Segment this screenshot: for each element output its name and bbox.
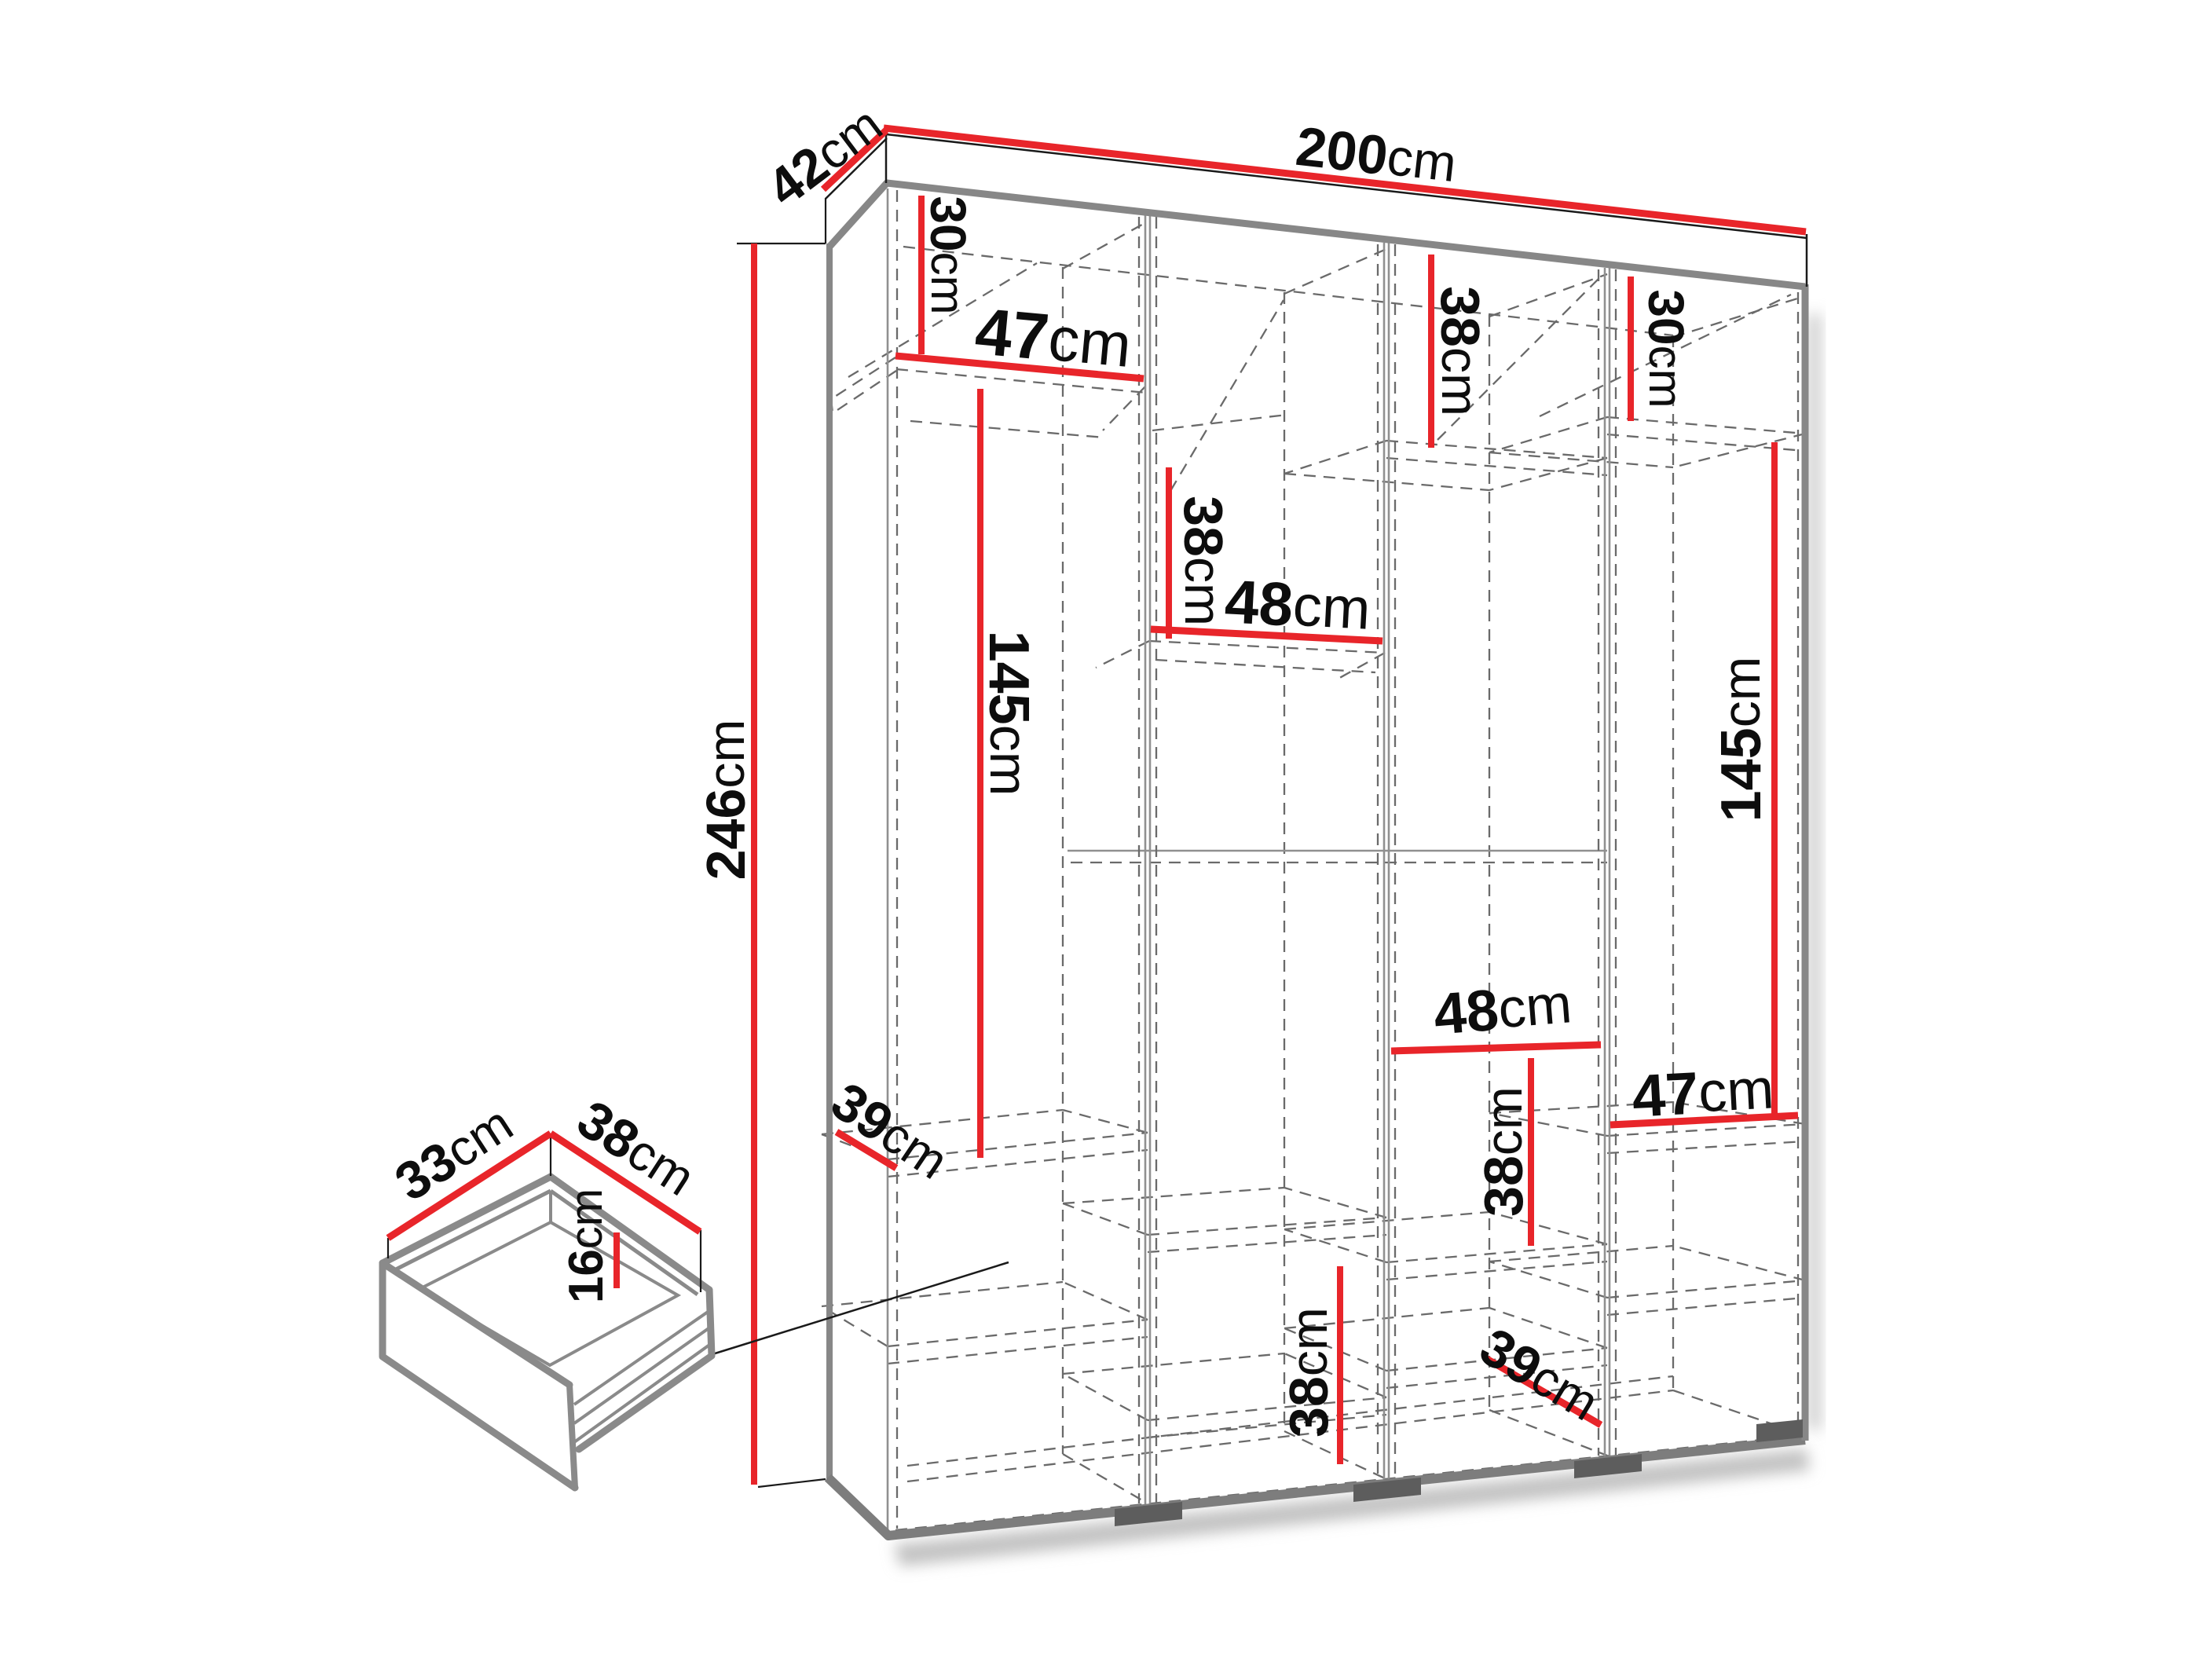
svg-text:38cm: 38cm	[1473, 1086, 1534, 1217]
svg-text:47cm: 47cm	[1631, 1056, 1776, 1130]
svg-text:30cm: 30cm	[1638, 289, 1694, 408]
svg-text:30cm: 30cm	[920, 196, 976, 314]
svg-text:16cm: 16cm	[559, 1188, 613, 1303]
svg-text:246cm: 246cm	[695, 720, 756, 881]
svg-text:38cm: 38cm	[1430, 286, 1491, 416]
svg-text:38cm: 38cm	[1278, 1307, 1339, 1437]
svg-text:48cm: 48cm	[1431, 971, 1574, 1047]
svg-text:48cm: 48cm	[1223, 566, 1372, 643]
svg-text:145cm: 145cm	[1710, 657, 1773, 822]
svg-text:145cm: 145cm	[977, 631, 1040, 797]
